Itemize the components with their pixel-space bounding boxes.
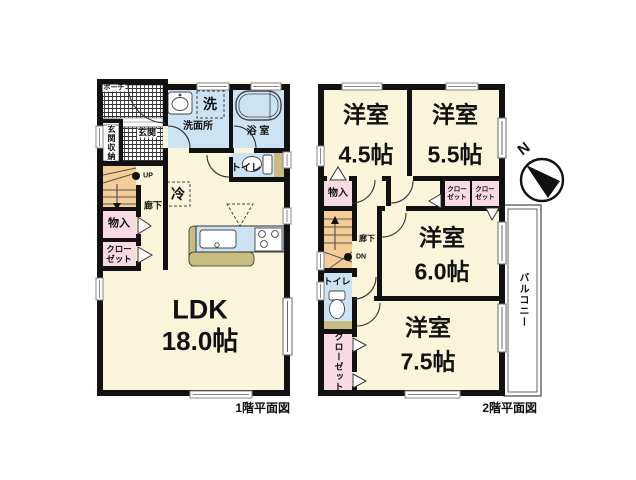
storage2-label: 物入	[328, 189, 348, 199]
room55-name-label: 洋室	[432, 104, 478, 127]
floor1-caption: 1階平面図	[235, 399, 290, 416]
floorplan-image: ポーチ 玄関収納 玄関 洗面所 洗 浴 室 トイレ 廊下 UP 物入 クロー ゼ…	[0, 0, 636, 480]
toilet2-icon	[329, 291, 345, 319]
closet1-label-line1: クロー	[106, 245, 132, 254]
room75-size-label: 7.5帖	[401, 351, 456, 374]
room75-name-label: 洋室	[405, 317, 451, 340]
closet2b-label-line2: ゼット	[475, 195, 495, 202]
washroom-label: 洗面所	[183, 122, 213, 132]
closet2b-label-line1: クロー	[475, 187, 495, 194]
laundry-label: 洗	[203, 97, 217, 111]
toilet1-label: トイレ	[231, 164, 261, 174]
floor2-caption: 2階平面図	[482, 399, 537, 416]
porch-label: ポーチ	[103, 85, 126, 92]
stove-icon	[255, 228, 282, 251]
stairs1-area	[103, 166, 136, 207]
sink-icon	[168, 92, 192, 114]
room45-size-label: 4.5帖	[339, 144, 394, 167]
hallway1-label: 廊下	[144, 202, 162, 211]
closet2a-label-line2: ゼット	[447, 195, 467, 202]
dn-dot	[344, 253, 352, 261]
up-label: UP	[143, 173, 153, 180]
kitchen-sink-icon	[200, 230, 236, 248]
closet1-label-line2: ゼット	[106, 255, 132, 264]
toilet2-label: トイレ	[323, 278, 350, 287]
compass-icon	[521, 159, 563, 201]
floorplan-graphics	[0, 0, 636, 480]
fridge-label: 冷	[171, 187, 185, 201]
entrance-storage-label: 玄関収納	[107, 125, 115, 161]
hallway2-label: 廊下	[359, 235, 375, 243]
entrance-label: 玄関	[137, 129, 157, 138]
storage1-label: 物入	[108, 219, 130, 230]
up-dot	[132, 172, 140, 180]
bath-label: 浴 室	[247, 127, 270, 137]
dn-label: DN	[356, 254, 366, 261]
ldk-size-label: 18.0帖	[162, 328, 239, 354]
room60-name-label: 洋室	[419, 227, 465, 250]
room45-name-label: 洋室	[343, 104, 389, 127]
toilet2-shelf	[324, 321, 352, 329]
room55-size-label: 5.5帖	[428, 144, 483, 167]
closet2a-label-line1: クロー	[447, 187, 467, 194]
balcony-label: バルコニー	[517, 273, 527, 328]
ldk-name-label: LDK	[172, 297, 228, 324]
closet2-tall-label: クローゼット	[334, 332, 343, 392]
room60-size-label: 6.0帖	[415, 261, 470, 284]
